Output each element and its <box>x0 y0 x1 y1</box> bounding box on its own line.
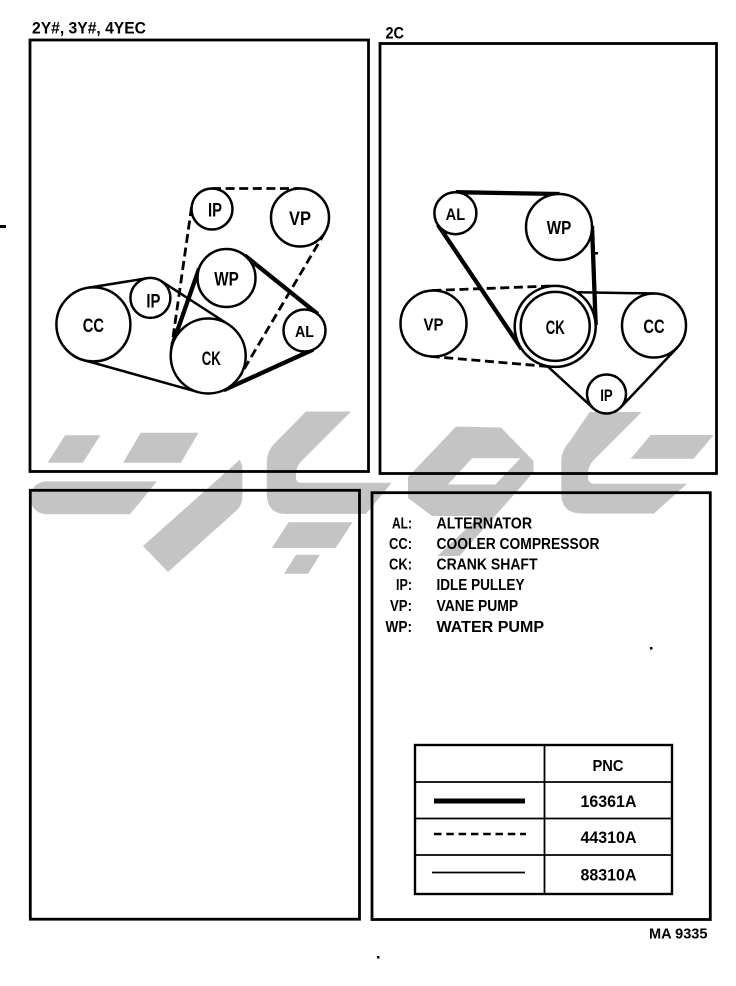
svg-text:VP:: VP: <box>390 598 412 615</box>
svg-text:CC: CC <box>643 317 664 338</box>
svg-text:CC: CC <box>83 316 104 337</box>
svg-text:VANE PUMP: VANE PUMP <box>437 598 519 615</box>
svg-text:MA 9335: MA 9335 <box>649 925 708 942</box>
svg-text:WP: WP <box>214 270 239 291</box>
svg-text:ALTERNATOR: ALTERNATOR <box>437 516 533 533</box>
svg-text:AL:: AL: <box>392 516 412 533</box>
svg-text:CK: CK <box>546 318 565 339</box>
svg-text:2Y#, 3Y#, 4YEC: 2Y#, 3Y#, 4YEC <box>32 19 146 38</box>
svg-text:IDLE PULLEY: IDLE PULLEY <box>437 577 525 594</box>
svg-text:CC:: CC: <box>389 536 412 553</box>
svg-text:CK: CK <box>202 349 221 370</box>
svg-text:IP: IP <box>208 201 222 222</box>
svg-text:IP:: IP: <box>396 577 412 594</box>
svg-text:IP: IP <box>600 386 613 405</box>
svg-text:AL: AL <box>446 205 466 224</box>
svg-text:88310A: 88310A <box>581 866 637 885</box>
svg-text:AL: AL <box>295 324 314 341</box>
svg-text:16361A: 16361A <box>581 792 637 811</box>
svg-text:PNC: PNC <box>593 758 624 775</box>
svg-text:CRANK SHAFT: CRANK SHAFT <box>437 557 538 574</box>
svg-text:VP: VP <box>289 209 311 230</box>
svg-text:VP: VP <box>424 315 444 335</box>
svg-text:IP: IP <box>146 292 160 313</box>
svg-text:44310A: 44310A <box>581 828 637 847</box>
svg-text:2C: 2C <box>386 23 405 42</box>
svg-text:WP: WP <box>547 218 572 238</box>
svg-text:COOLER COMPRESSOR: COOLER COMPRESSOR <box>437 536 600 553</box>
svg-text:WATER PUMP: WATER PUMP <box>437 619 545 636</box>
svg-text:WP:: WP: <box>386 619 413 636</box>
svg-text:CK:: CK: <box>389 557 412 574</box>
